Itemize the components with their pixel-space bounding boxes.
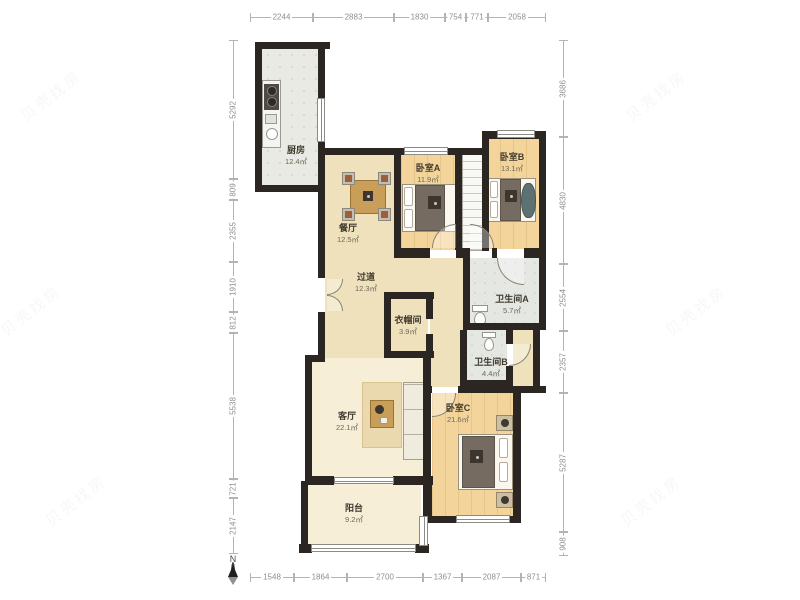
balcony-floor <box>308 484 421 546</box>
wall <box>255 42 262 192</box>
bedroom-a-window <box>404 147 448 155</box>
wall <box>318 152 325 278</box>
room-name: 阳台 <box>345 503 363 515</box>
room-area: 21.6㎡ <box>446 415 471 425</box>
watermark: 贝壳找房 <box>41 470 111 531</box>
wall <box>492 248 497 258</box>
room-name: 过道 <box>355 272 377 284</box>
wall <box>533 330 540 393</box>
dim-left: 1910 <box>226 262 240 312</box>
burner-icon <box>267 97 277 107</box>
north-compass-icon: N <box>218 554 248 582</box>
room-area: 13.1㎡ <box>500 164 525 174</box>
wall <box>255 185 325 192</box>
wall <box>524 248 546 258</box>
nightstand <box>496 492 513 508</box>
lamp-icon <box>501 496 509 504</box>
balcony-east-window <box>419 516 428 546</box>
dim-bottom: 871 <box>521 570 546 584</box>
pillow <box>499 438 508 458</box>
bed-b-throw <box>505 190 517 202</box>
dim-left: 812 <box>226 312 240 333</box>
room-name: 餐厅 <box>337 223 359 235</box>
room-area: 9.2㎡ <box>345 515 363 525</box>
balcony-sliding-door <box>334 477 394 484</box>
compass-needle-icon <box>228 565 238 577</box>
balcony-south-window <box>311 544 416 552</box>
dim-right: 3686 <box>556 40 570 137</box>
watermark: 贝壳找房 <box>621 65 691 126</box>
wall <box>301 481 308 552</box>
room-label-bathroom-b: 卫生间B 4.4㎡ <box>474 357 508 378</box>
wall <box>305 355 312 484</box>
wall <box>460 330 467 387</box>
dim-right: 2357 <box>556 331 570 393</box>
corridor-south-floor <box>430 299 463 387</box>
room-area: 22.1㎡ <box>336 423 358 433</box>
dim-left: 2147 <box>226 498 240 554</box>
compass-ring <box>231 562 235 583</box>
room-label-bathroom-a: 卫生间A 5.7㎡ <box>495 294 529 315</box>
toilet-a-tank <box>472 305 488 312</box>
burner-icon <box>267 86 277 96</box>
wall <box>513 386 521 523</box>
pillow <box>490 201 498 218</box>
table-centerpiece <box>363 191 373 201</box>
room-name: 客厅 <box>336 411 358 423</box>
fan-chair <box>521 183 536 218</box>
wall <box>455 148 462 250</box>
bedroom-b-window <box>497 130 535 138</box>
room-label-bedroom-c: 卧室C 21.6㎡ <box>446 403 471 424</box>
compass-needle-tail-icon <box>228 577 238 585</box>
watermark: 贝壳找房 <box>0 280 66 341</box>
room-name: 卧室C <box>446 403 471 415</box>
room-label-balcony: 阳台 9.2㎡ <box>345 503 363 524</box>
dim-right: 4830 <box>556 137 570 264</box>
dim-right: 2554 <box>556 264 570 331</box>
wall <box>506 330 513 344</box>
room-area: 12.3㎡ <box>355 284 377 294</box>
dim-bottom: 1548 <box>250 570 294 584</box>
wall <box>456 248 470 258</box>
dim-bottom: 2087 <box>462 570 521 584</box>
dim-left: 809 <box>226 179 240 200</box>
wall <box>539 131 546 330</box>
dim-top: 1830 <box>394 10 445 24</box>
dim-top: 2244 <box>250 10 313 24</box>
wall <box>384 292 391 358</box>
dim-left: 2355 <box>226 200 240 262</box>
dim-left: 5538 <box>226 333 240 479</box>
dim-bottom: 1367 <box>423 570 462 584</box>
room-name: 卧室B <box>500 152 525 164</box>
dining-chair <box>378 172 391 185</box>
bed-a-throw <box>428 196 441 209</box>
room-area: 12.4㎡ <box>285 157 307 167</box>
wall <box>426 334 433 358</box>
dim-top: 771 <box>466 10 488 24</box>
pillow <box>490 181 498 198</box>
room-name: 卫生间B <box>474 357 508 369</box>
dim-top: 754 <box>445 10 466 24</box>
room-area: 3.9㎡ <box>394 327 421 337</box>
pillow <box>404 187 413 206</box>
room-label-dining: 餐厅 12.5㎡ <box>337 223 359 244</box>
wall <box>458 386 513 393</box>
pillow <box>404 209 413 228</box>
pillow <box>499 462 508 482</box>
wall <box>322 148 401 155</box>
kitchen-cabinet <box>265 114 277 124</box>
dim-right: 5287 <box>556 393 570 532</box>
sofa <box>403 382 425 460</box>
room-name: 厨房 <box>285 145 307 157</box>
dim-top: 2058 <box>488 10 546 24</box>
dim-right: 908 <box>556 532 570 556</box>
stove <box>264 84 279 110</box>
room-label-hallway: 过道 12.3㎡ <box>355 272 377 293</box>
kitchen-sink <box>266 128 278 140</box>
wall <box>423 478 432 518</box>
dim-left: 721 <box>226 479 240 498</box>
room-name: 卫生间A <box>495 294 529 306</box>
room-name: 卧室A <box>416 163 441 175</box>
kitchen-window <box>317 98 325 142</box>
wall <box>394 248 430 258</box>
wall <box>426 296 433 319</box>
dim-bottom: 2700 <box>347 570 423 584</box>
room-label-living: 客厅 22.1㎡ <box>336 411 358 432</box>
wall <box>318 42 325 102</box>
bed-c-throw <box>470 450 483 463</box>
watermark: 贝壳找房 <box>661 280 731 341</box>
room-label-bedroom-a: 卧室A 11.9㎡ <box>416 163 441 184</box>
room-label-bedroom-b: 卧室B 13.1㎡ <box>500 152 525 173</box>
watermark: 贝壳找房 <box>16 65 86 126</box>
lamp-icon <box>501 419 509 427</box>
room-area: 4.4㎡ <box>474 369 508 379</box>
floor-plan-page: 厨房 12.4㎡ 餐厅 12.5㎡ 卧室A 11.9㎡ 卧室B 13.1㎡ 过道… <box>0 0 800 600</box>
room-label-closet: 衣帽间 3.9㎡ <box>394 315 421 336</box>
toilet-b-bowl <box>484 338 494 351</box>
dim-top: 2883 <box>313 10 394 24</box>
tray <box>380 417 388 424</box>
dim-left: 5292 <box>226 40 240 179</box>
room-label-kitchen: 厨房 12.4㎡ <box>285 145 307 166</box>
room-area: 11.9㎡ <box>416 175 441 185</box>
dining-chair <box>342 172 355 185</box>
dim-bottom: 1864 <box>294 570 347 584</box>
bedroom-c-window <box>456 515 510 523</box>
dining-chair <box>342 208 355 221</box>
room-area: 12.5㎡ <box>337 235 359 245</box>
wall <box>423 355 431 480</box>
dining-chair <box>378 208 391 221</box>
wall <box>463 258 470 330</box>
kettle-icon <box>375 405 384 414</box>
wall <box>463 323 546 330</box>
nightstand <box>496 415 513 431</box>
watermark: 贝壳找房 <box>616 470 686 531</box>
wall <box>308 476 334 485</box>
room-area: 5.7㎡ <box>495 306 529 316</box>
room-name: 衣帽间 <box>394 315 421 327</box>
wall <box>394 148 401 255</box>
